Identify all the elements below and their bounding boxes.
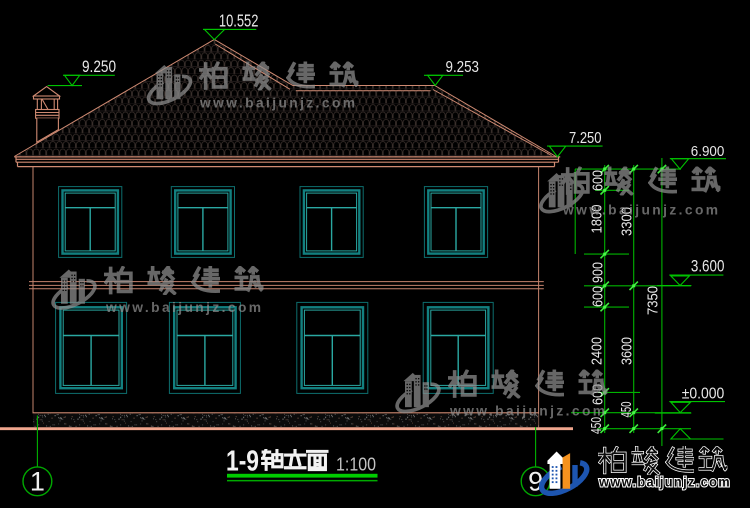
svg-text:900: 900 [589, 262, 606, 283]
svg-text:www.baijunjz.com: www.baijunjz.com [562, 203, 720, 218]
svg-text:www.baijunjz.com: www.baijunjz.com [598, 475, 731, 490]
svg-text:7.250: 7.250 [569, 130, 602, 147]
svg-text:10.552: 10.552 [219, 11, 259, 31]
svg-text:450: 450 [588, 417, 605, 434]
svg-text:9.250: 9.250 [82, 58, 116, 76]
svg-text:±0.000: ±0.000 [682, 386, 725, 403]
svg-text:450: 450 [618, 402, 635, 418]
svg-text:2400: 2400 [588, 337, 605, 365]
svg-text:www.baijunjz.com: www.baijunjz.com [449, 404, 607, 419]
svg-text:7350: 7350 [644, 286, 661, 315]
svg-text:6.900: 6.900 [691, 143, 725, 160]
svg-text:www.baijunjz.com: www.baijunjz.com [105, 300, 263, 315]
svg-text:1:100: 1:100 [336, 455, 376, 475]
svg-text:600: 600 [589, 170, 606, 191]
svg-text:3600: 3600 [618, 337, 635, 365]
svg-text:1-9: 1-9 [226, 446, 259, 478]
svg-text:www.baijunjz.com: www.baijunjz.com [199, 96, 357, 111]
svg-text:3.600: 3.600 [691, 257, 725, 275]
svg-text:9.253: 9.253 [446, 59, 480, 76]
svg-text:1: 1 [30, 467, 45, 497]
svg-text:600: 600 [589, 286, 606, 307]
